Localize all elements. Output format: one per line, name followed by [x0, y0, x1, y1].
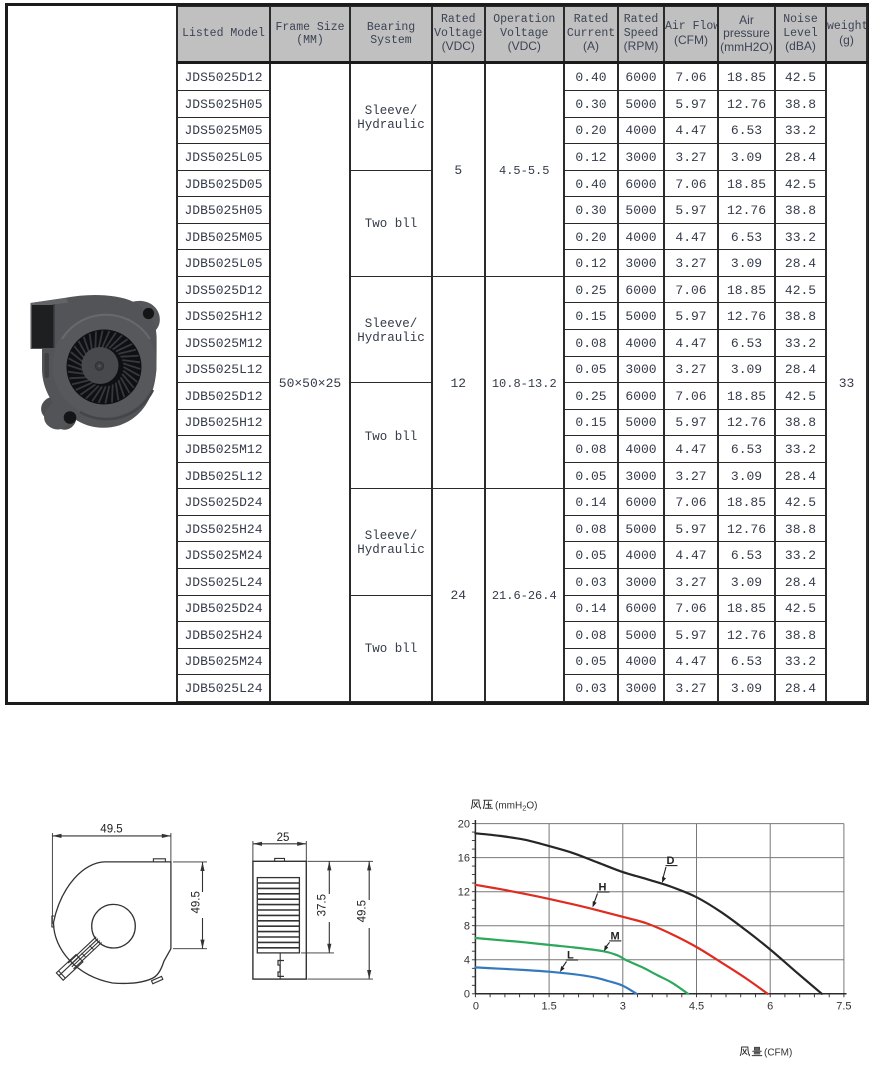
svg-text:8: 8 [464, 921, 470, 933]
svg-text:0: 0 [473, 1001, 479, 1013]
svg-text:3: 3 [620, 1001, 626, 1013]
svg-text:(mmH2O): (mmH2O) [495, 801, 538, 813]
svg-text:7.5: 7.5 [836, 1001, 851, 1013]
svg-text:6: 6 [767, 1001, 773, 1013]
svg-text:16: 16 [458, 852, 470, 864]
svg-text:25: 25 [277, 832, 290, 844]
svg-text:4.5: 4.5 [689, 1001, 704, 1013]
svg-text:4: 4 [464, 955, 470, 967]
svg-text:49.5: 49.5 [357, 900, 369, 922]
svg-text:49.5: 49.5 [100, 824, 122, 836]
svg-text:1.5: 1.5 [541, 1001, 556, 1013]
svg-text:12: 12 [458, 887, 470, 899]
svg-text:(CFM): (CFM) [764, 1048, 792, 1059]
svg-text:0: 0 [464, 989, 470, 1001]
svg-text:37.5: 37.5 [317, 894, 329, 916]
svg-text:20: 20 [458, 818, 470, 830]
svg-text:49.5: 49.5 [190, 891, 202, 913]
